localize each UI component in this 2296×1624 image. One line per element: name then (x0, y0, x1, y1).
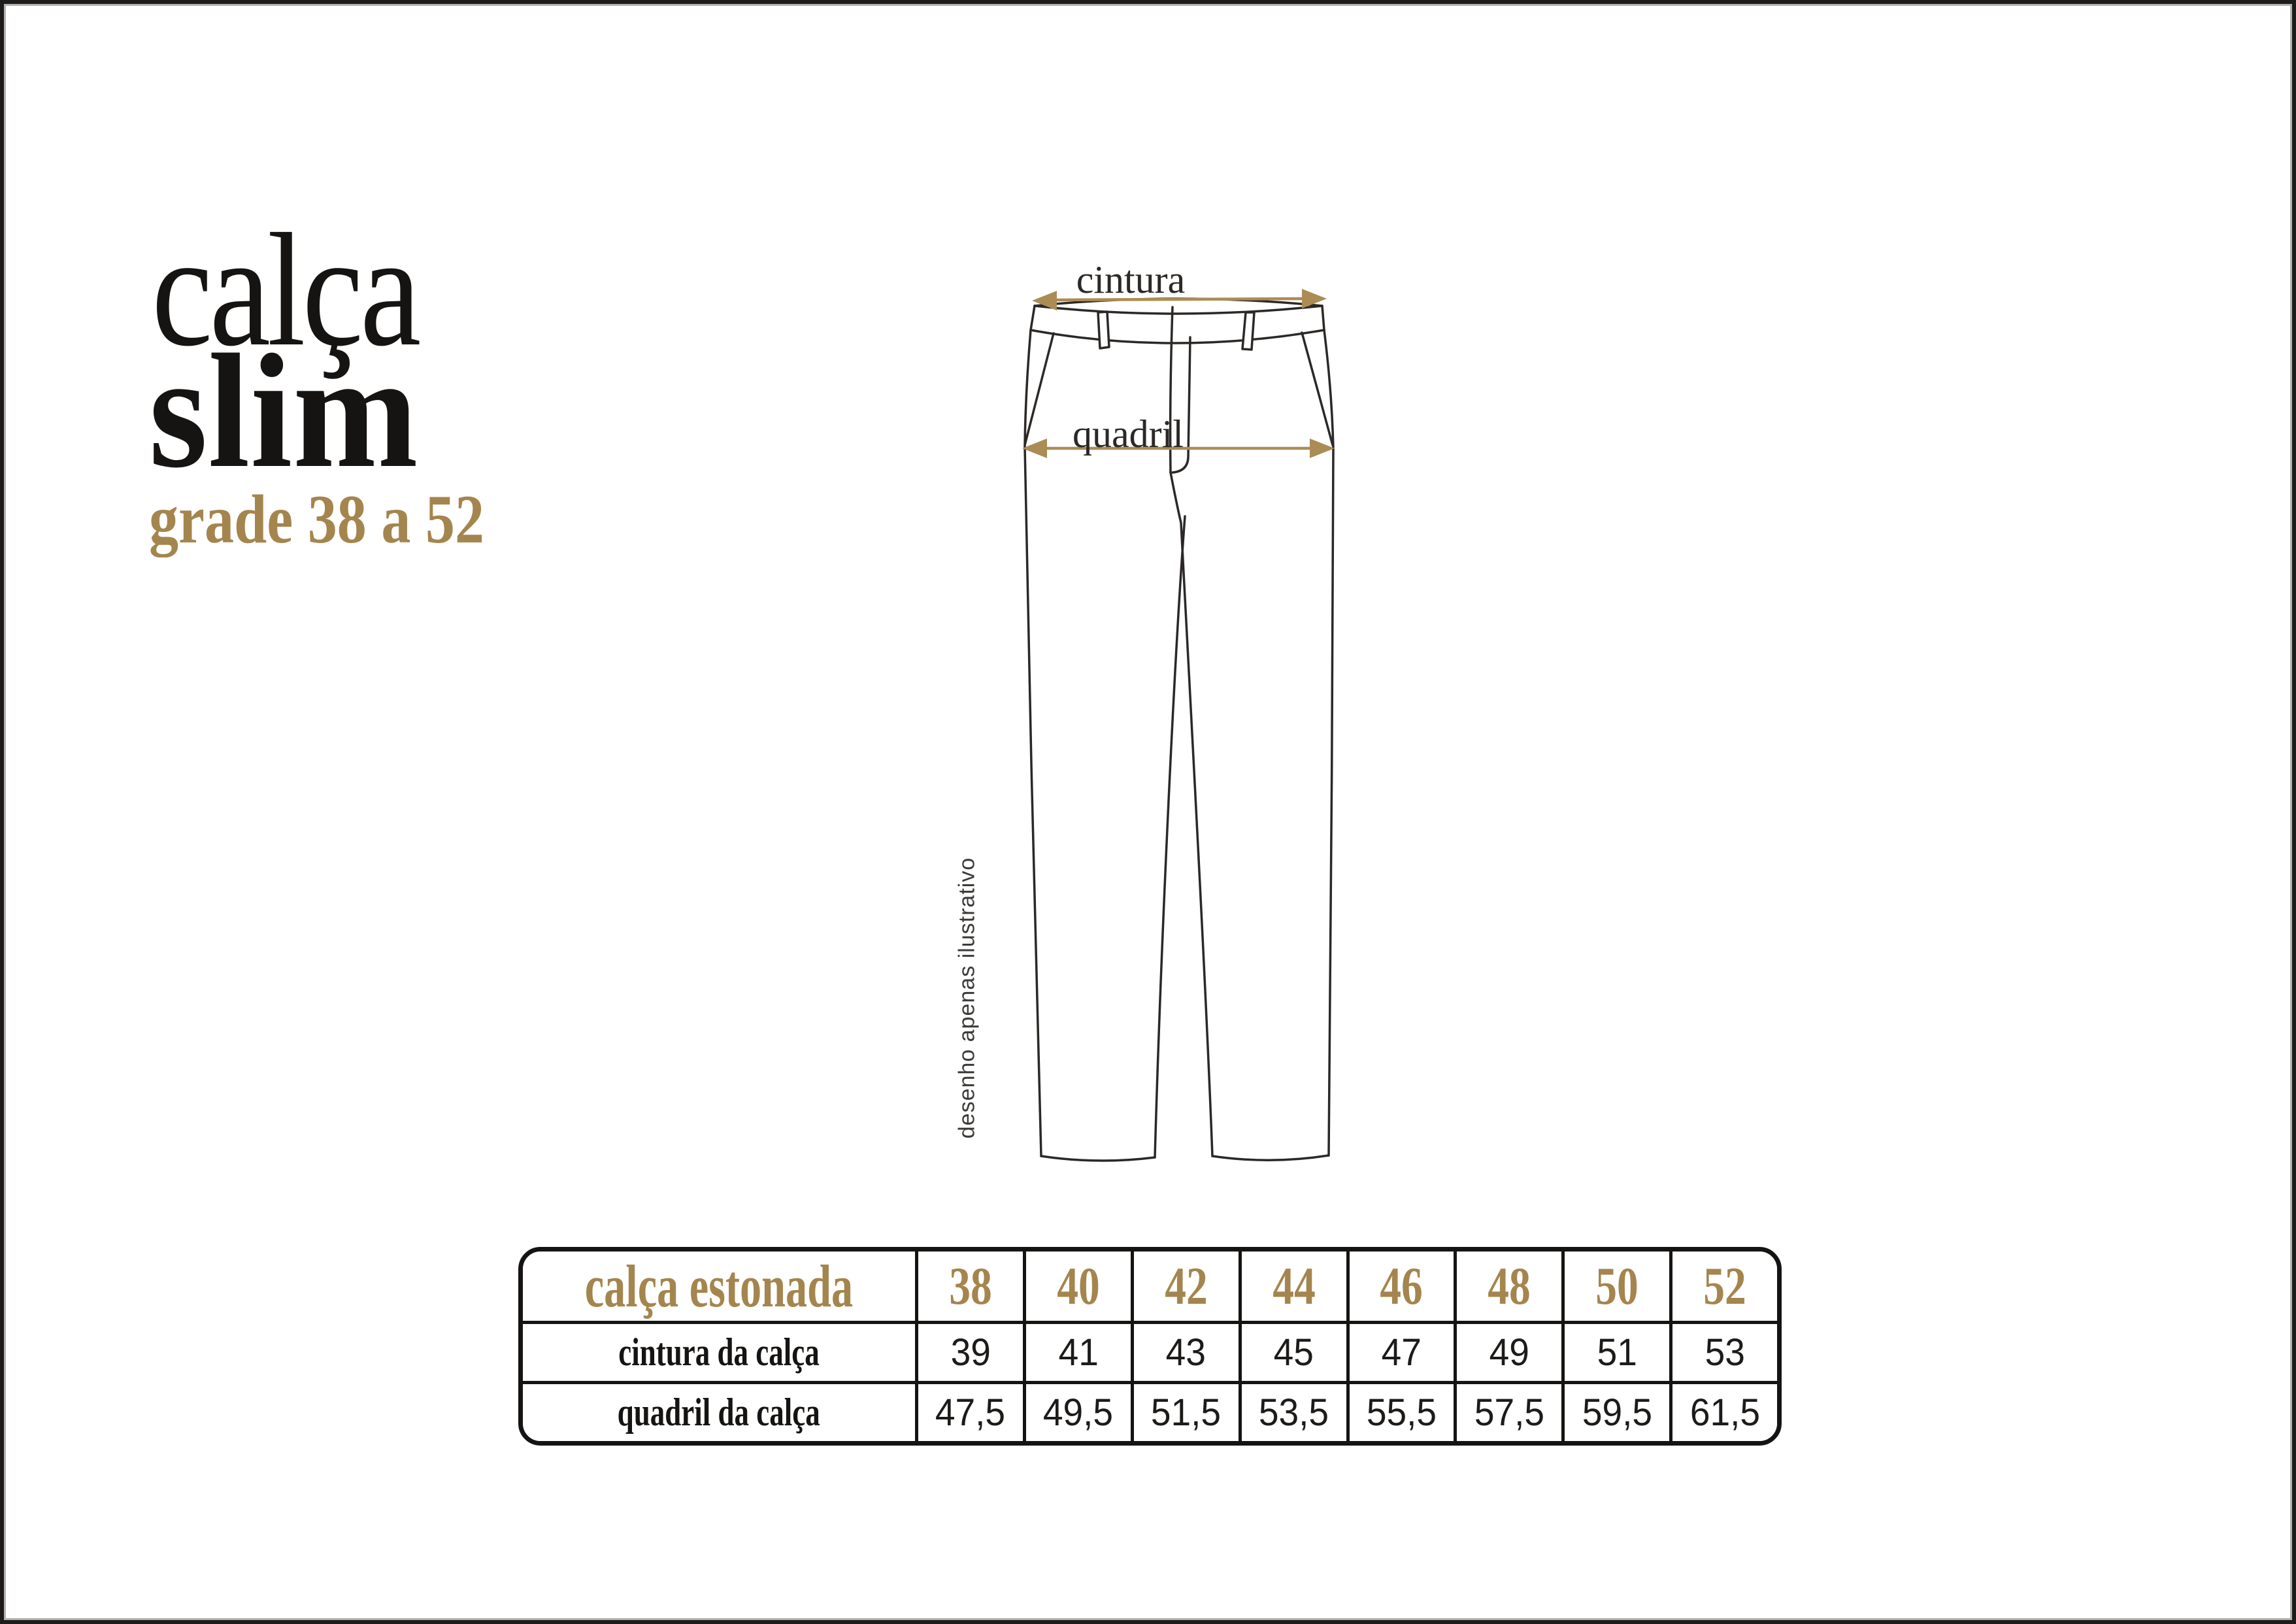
table-cell-r0c5-text: 49 (1489, 1331, 1529, 1374)
table-cell-r0c4: 47 (1346, 1321, 1454, 1381)
table-cell-r1c2-text: 51,5 (1151, 1391, 1221, 1434)
table-cell-r0c2-text: 43 (1166, 1331, 1206, 1374)
table-header-product: calça estonada (523, 1251, 915, 1321)
waistband-inner-edge (1035, 306, 1322, 314)
waistband-right-end (1322, 306, 1324, 330)
right-outer-seam (1324, 330, 1333, 1155)
table-cell-r1c5: 57,5 (1454, 1381, 1561, 1441)
table-cell-r0c2: 43 (1131, 1321, 1239, 1381)
waistband-left-end (1031, 306, 1035, 330)
table-cell-r1c1-text: 49,5 (1043, 1391, 1113, 1434)
table-header-size-42: 42 (1131, 1251, 1239, 1321)
table-cell-r0c3-text: 45 (1274, 1331, 1314, 1374)
table-cell-r0c6-text: 51 (1597, 1331, 1637, 1374)
product-title-line2: slim (149, 330, 419, 493)
table-header-size-50-text: 50 (1595, 1255, 1639, 1317)
table-header-product-text: calça estonada (585, 1251, 853, 1321)
table-header-size-52-text: 52 (1703, 1255, 1746, 1317)
table-cell-r0c1: 41 (1023, 1321, 1131, 1381)
table-cell-r1c5-text: 57,5 (1474, 1391, 1544, 1434)
hip-measure-label: quadril (1068, 414, 1188, 454)
left-inseam (1155, 516, 1185, 1157)
table-cell-r1c0: 47,5 (915, 1381, 1023, 1441)
table-cell-r0c3: 45 (1239, 1321, 1346, 1381)
illustrative-caption: desenho apenas ilustrativo (955, 857, 980, 1139)
table-cell-r0c5: 49 (1454, 1321, 1561, 1381)
table-row-label-1-text: quadril da calça (618, 1390, 820, 1435)
table-cell-r1c4-text: 55,5 (1367, 1391, 1437, 1434)
table-cell-r1c4: 55,5 (1346, 1381, 1454, 1441)
table-cell-r0c0-text: 39 (950, 1331, 990, 1374)
table-header-size-50: 50 (1561, 1251, 1669, 1321)
table-cell-r0c4-text: 47 (1382, 1331, 1422, 1374)
table-header-size-42-text: 42 (1165, 1255, 1208, 1317)
size-range-subtitle: grade 38 a 52 (149, 485, 484, 554)
table-cell-r0c7: 53 (1669, 1321, 1777, 1381)
table-header-size-40-text: 40 (1057, 1255, 1100, 1317)
table-cell-r1c0-text: 47,5 (935, 1391, 1005, 1434)
table-header-size-40: 40 (1023, 1251, 1131, 1321)
right-inseam (1171, 472, 1212, 1156)
table-cell-r1c6-text: 59,5 (1582, 1391, 1652, 1434)
table-header-size-48: 48 (1454, 1251, 1561, 1321)
table-cell-r1c6: 59,5 (1561, 1381, 1669, 1441)
table-cell-r0c7-text: 53 (1705, 1331, 1744, 1374)
table-cell-r1c1: 49,5 (1023, 1381, 1131, 1441)
table-header-size-46: 46 (1346, 1251, 1454, 1321)
table-header-size-38: 38 (915, 1251, 1023, 1321)
table-header-size-48-text: 48 (1488, 1255, 1531, 1317)
right-pocket-line (1302, 333, 1333, 445)
table-header-size-44: 44 (1239, 1251, 1346, 1321)
table-header-size-38-text: 38 (949, 1255, 992, 1317)
right-belt-loop (1242, 312, 1254, 350)
table-cell-r1c3-text: 53,5 (1259, 1391, 1329, 1434)
table-cell-r1c7: 61,5 (1669, 1381, 1777, 1441)
left-hem (1041, 1156, 1155, 1161)
table-header-size-46-text: 46 (1380, 1255, 1423, 1317)
table-cell-r1c2: 51,5 (1131, 1381, 1239, 1441)
table-header-size-44-text: 44 (1273, 1255, 1316, 1317)
table-cell-r0c6: 51 (1561, 1321, 1669, 1381)
right-hem (1212, 1155, 1329, 1160)
waist-measure-label: cintura (1064, 260, 1197, 299)
size-table: calça estonada3840424446485052cintura da… (518, 1247, 1782, 1446)
table-row-label-1: quadril da calça (523, 1381, 915, 1441)
table-cell-r1c7-text: 61,5 (1689, 1391, 1759, 1434)
table-cell-r0c1-text: 41 (1058, 1331, 1098, 1374)
table-cell-r1c3: 53,5 (1239, 1381, 1346, 1441)
table-header-size-52: 52 (1669, 1251, 1777, 1321)
table-cell-r0c0: 39 (915, 1321, 1023, 1381)
waistband-bottom-edge (1031, 330, 1324, 343)
table-row-label-0: cintura da calça (523, 1321, 915, 1381)
table-row-label-0-text: cintura da calça (618, 1330, 819, 1375)
left-belt-loop (1098, 312, 1109, 348)
